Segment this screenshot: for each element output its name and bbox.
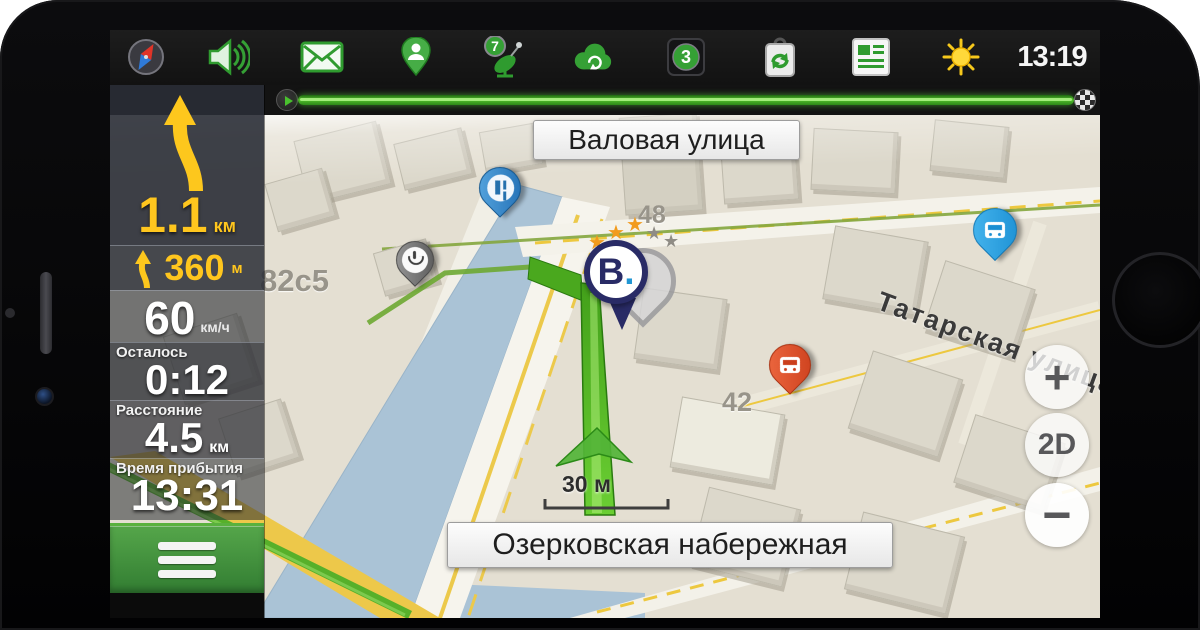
menu-button[interactable] — [110, 523, 264, 593]
mail-icon[interactable] — [300, 35, 344, 79]
house-number: 82с5 — [260, 263, 329, 299]
finish-flag-icon — [1074, 89, 1096, 111]
zoom-in-button[interactable]: + — [1025, 345, 1089, 409]
navigation-sidebar: 1.1 км 360 м 60 км/ч Осталось 0:12 — [110, 85, 265, 618]
bus-icon — [985, 222, 1005, 238]
pharmacy-icon — [402, 247, 428, 273]
view-mode-button[interactable]: 2D — [1025, 413, 1089, 477]
traffic-score: 3 — [681, 47, 691, 67]
map-scale: 30 м — [562, 471, 611, 498]
home-button[interactable] — [1112, 252, 1200, 348]
app-screen: ★ ★ ★ ★ ★ 82с5 48 42 30 м — [110, 30, 1100, 618]
services-sync-icon[interactable] — [758, 35, 802, 79]
destination-pin[interactable]: B. — [584, 240, 684, 340]
route-progress-bar — [265, 85, 1100, 115]
speed-value: 60 — [144, 297, 195, 339]
distance-remaining-value: 4.5 — [145, 418, 203, 458]
maneuver2-distance-unit: м — [231, 260, 242, 277]
traffic-score-badge[interactable]: 3 — [664, 35, 708, 79]
route-progress-fill — [298, 95, 1074, 105]
house-number: 48 — [638, 201, 666, 230]
maneuver2-distance: 360 — [164, 250, 224, 286]
next-maneuver-panel[interactable]: 1.1 км — [110, 85, 264, 245]
monument-icon — [487, 175, 514, 202]
navigator-screenshot: ★ ★ ★ ★ ★ 82с5 48 42 30 м — [0, 0, 1200, 630]
volume-icon[interactable] — [206, 35, 250, 79]
speed-panel: 60 км/ч — [110, 290, 264, 342]
destination-pin-label: B. — [584, 240, 648, 304]
maneuver-distance-unit: км — [214, 216, 236, 237]
turn-arrow-small-icon — [131, 248, 157, 288]
phone-frame: ★ ★ ★ ★ ★ 82с5 48 42 30 м — [0, 0, 1200, 630]
time-remaining-panel: Осталось 0:12 — [110, 342, 264, 400]
phone-camera — [35, 387, 54, 406]
satellite-count: 7 — [491, 38, 499, 54]
street-label-bottom: Озерковская набережная — [447, 522, 893, 568]
speed-unit: км/ч — [200, 319, 229, 339]
distance-remaining-panel: Расстояние 4.5 км — [110, 400, 264, 458]
clock: 13:19 — [1010, 30, 1094, 85]
maneuver-distance: 1.1 — [138, 191, 208, 239]
compass-icon[interactable] — [124, 35, 168, 79]
cloud-sync-icon[interactable] — [570, 35, 614, 79]
zoom-out-button[interactable]: − — [1025, 483, 1089, 547]
route-start-icon — [276, 89, 298, 111]
second-maneuver-panel[interactable]: 360 м — [110, 245, 264, 290]
route-progress-track — [298, 95, 1074, 105]
arrival-time-panel: Время прибытия 13:31 — [110, 458, 264, 520]
satellite-icon[interactable]: 7 — [483, 35, 527, 79]
street-label-top: Валовая улица — [533, 120, 800, 160]
news-icon[interactable] — [849, 35, 893, 79]
hamburger-icon — [158, 536, 216, 584]
driver-pin-icon[interactable] — [394, 35, 438, 79]
arrival-time-value: 13:31 — [110, 476, 264, 516]
turn-arrow-icon — [110, 85, 264, 191]
house-number: 42 — [722, 387, 752, 418]
phone-speaker — [40, 272, 52, 354]
tram-icon — [780, 357, 800, 373]
sidebar-footer — [110, 593, 264, 618]
time-remaining-value: 0:12 — [110, 360, 264, 400]
weather-sun-icon[interactable] — [939, 35, 983, 79]
phone-sensor — [5, 308, 15, 318]
status-bar: 7 3 13:19 — [110, 30, 1100, 85]
